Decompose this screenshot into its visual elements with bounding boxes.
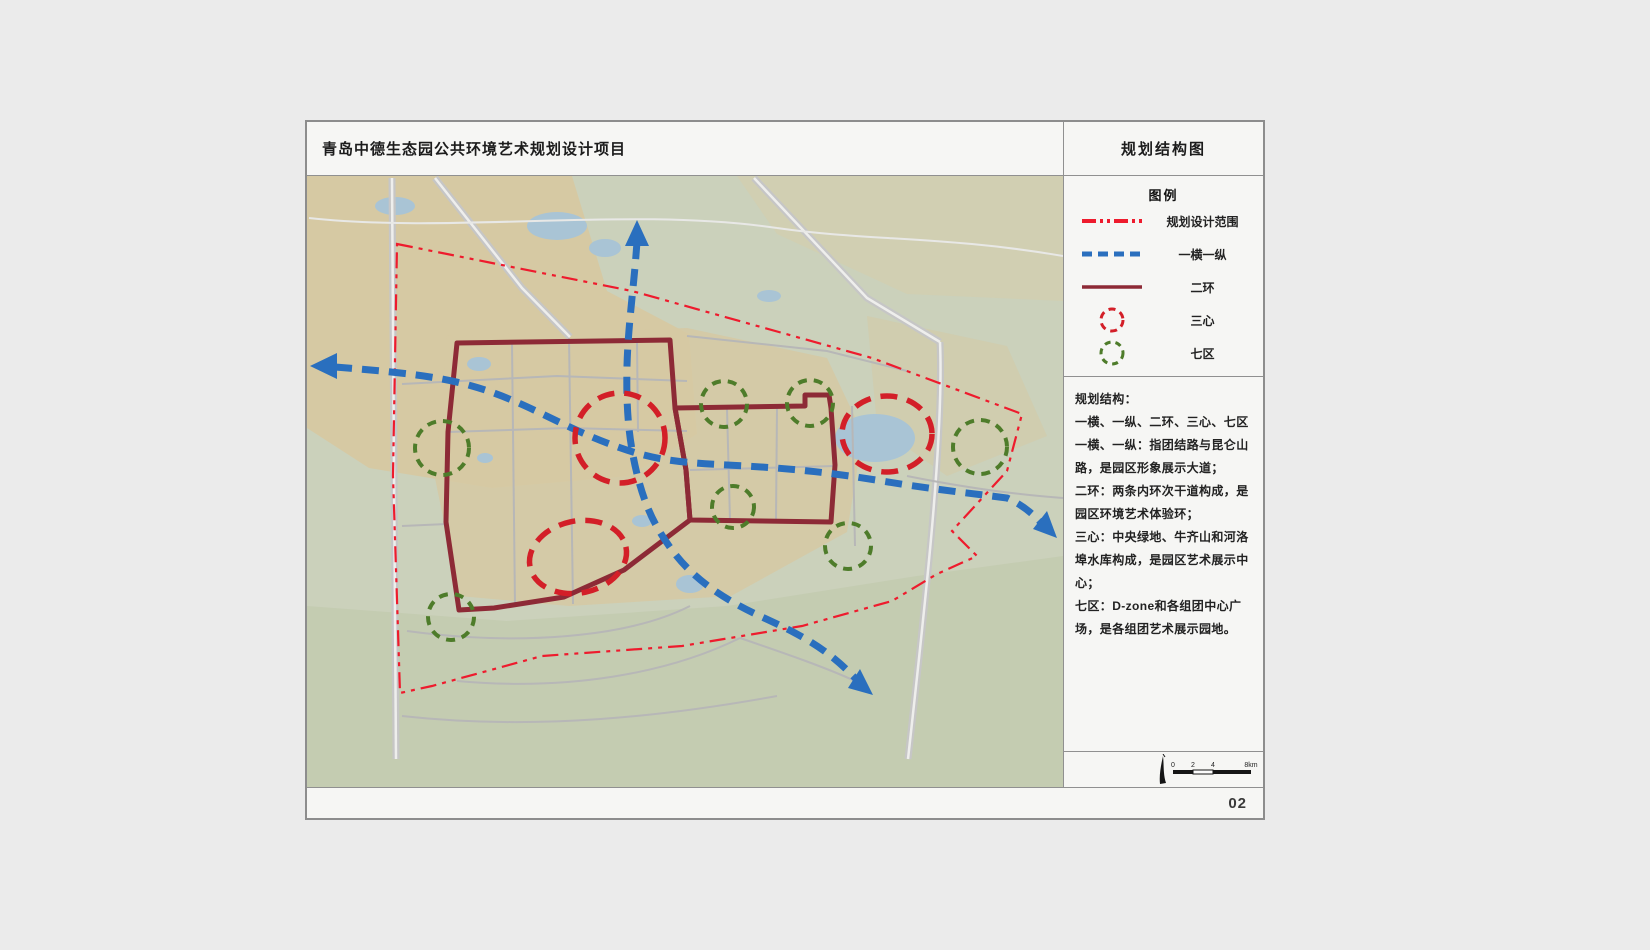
legend-item-centers: 三心 (1064, 304, 1263, 336)
legend-label: 一横一纵 (1148, 246, 1257, 263)
north-scale-row: 0 2 4 8km (1064, 752, 1263, 786)
map-canvas (307, 176, 1063, 787)
description-line: 三心：中央绿地、牛齐山和河洛埠水库构成，是园区艺术展示中心； (1075, 526, 1255, 595)
legend-item-axes: 一横一纵 (1064, 238, 1263, 270)
description-line: 一横、一纵：指团结路与昆仑山路，是园区形象展示大道； (1075, 434, 1255, 480)
scale-tick: 4 (1211, 762, 1215, 769)
project-title: 青岛中德生态园公共环境艺术规划设计项目 (322, 138, 626, 159)
red-dashdot-line-icon (1076, 216, 1148, 226)
legend-label: 七区 (1148, 345, 1257, 362)
scale-bar: 0 2 4 8km (1133, 759, 1261, 784)
blue-dashed-line-icon (1076, 249, 1148, 259)
description-line: 七区：D-zone和各组团中心广场，是各组团艺术展示园地。 (1075, 595, 1255, 641)
scale-segment (1213, 770, 1251, 774)
description-line: 规划结构： (1075, 388, 1255, 411)
title-bar: 青岛中德生态园公共环境艺术规划设计项目 (307, 122, 1063, 176)
page-number: 02 (1228, 795, 1247, 812)
scale-segment (1173, 770, 1193, 774)
legend-label: 二环 (1148, 279, 1257, 296)
plan-sheet: 青岛中德生态园公共环境艺术规划设计项目 (305, 120, 1265, 820)
legend-heading: 图例 (1064, 185, 1263, 204)
description-line: 一横、一纵、二环、三心、七区 (1075, 411, 1255, 434)
footer-bar: 02 (307, 787, 1263, 818)
legend-item-ring: 二环 (1064, 271, 1263, 303)
red-dashed-circle-icon (1076, 305, 1148, 335)
legend-label: 规划设计范围 (1148, 213, 1257, 230)
scale-tick: 0 (1171, 762, 1175, 769)
legend-panel: 图例 规划设计范围 一横一纵 二环 (1064, 176, 1263, 377)
scale-tick: 2 (1191, 762, 1195, 769)
maroon-solid-line-icon (1076, 282, 1148, 292)
legend-item-boundary: 规划设计范围 (1064, 205, 1263, 237)
legend-label: 三心 (1148, 312, 1257, 329)
side-panel: 规划结构图 图例 规划设计范围 一横一纵 二环 (1063, 122, 1263, 787)
scale-tick: 8km (1244, 762, 1257, 769)
map-area (307, 176, 1063, 787)
description-line: 二环：两条内环次干道构成，是园区环境艺术体验环； (1075, 480, 1255, 526)
scale-segment (1193, 770, 1213, 774)
description-panel: 规划结构： 一横、一纵、二环、三心、七区 一横、一纵：指团结路与昆仑山路，是园区… (1064, 377, 1263, 752)
map-title: 规划结构图 (1121, 138, 1206, 159)
desktop-background: { "page": { "background": "#ebebeb", "pa… (0, 0, 1650, 950)
green-dashed-circle-icon (1076, 338, 1148, 368)
legend-item-districts: 七区 (1064, 337, 1263, 369)
map-title-cell: 规划结构图 (1064, 122, 1263, 176)
